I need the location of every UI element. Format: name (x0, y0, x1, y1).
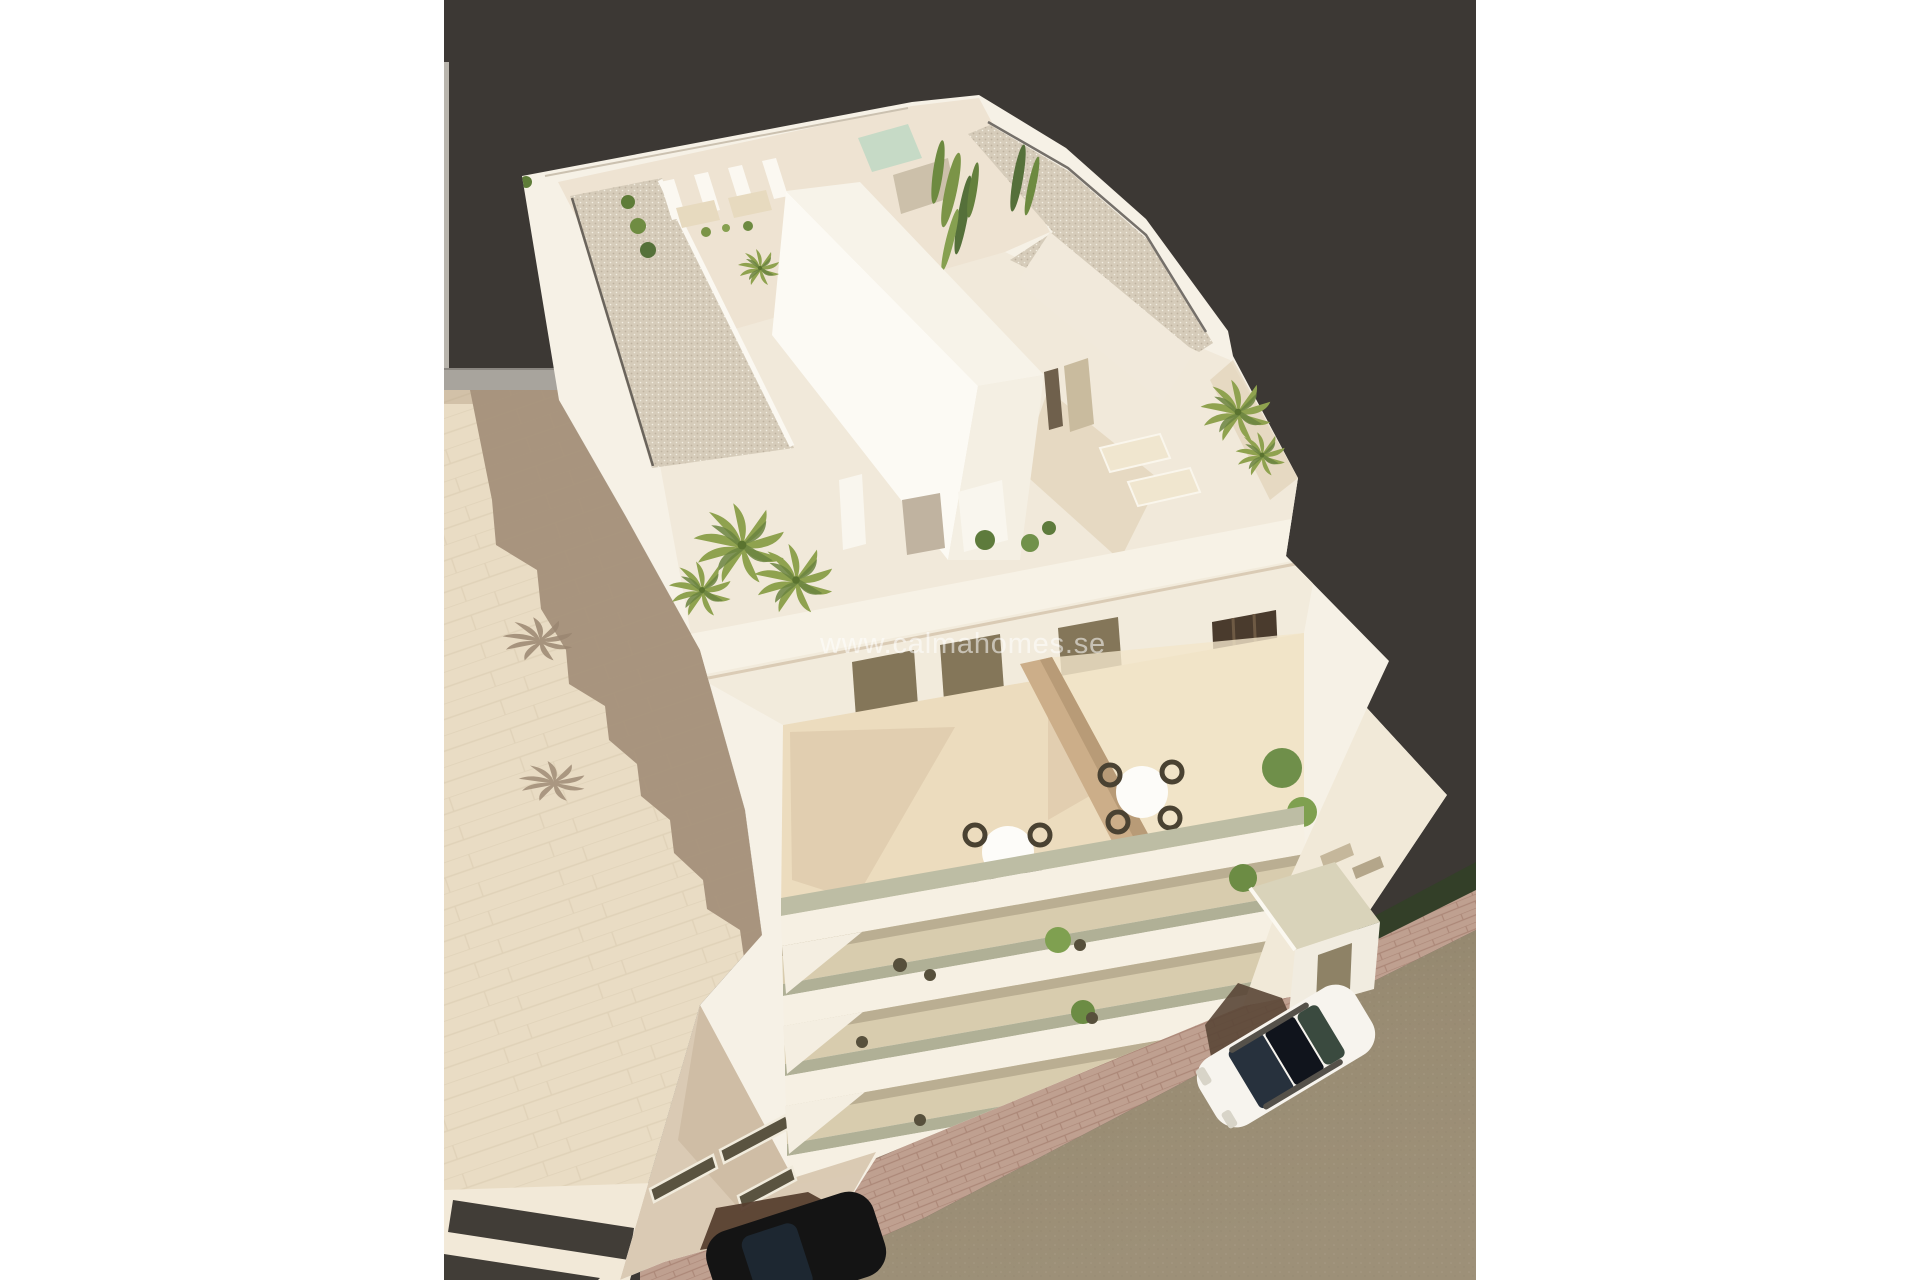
svg-text:www.calmahomes.se: www.calmahomes.se (819, 628, 1106, 660)
